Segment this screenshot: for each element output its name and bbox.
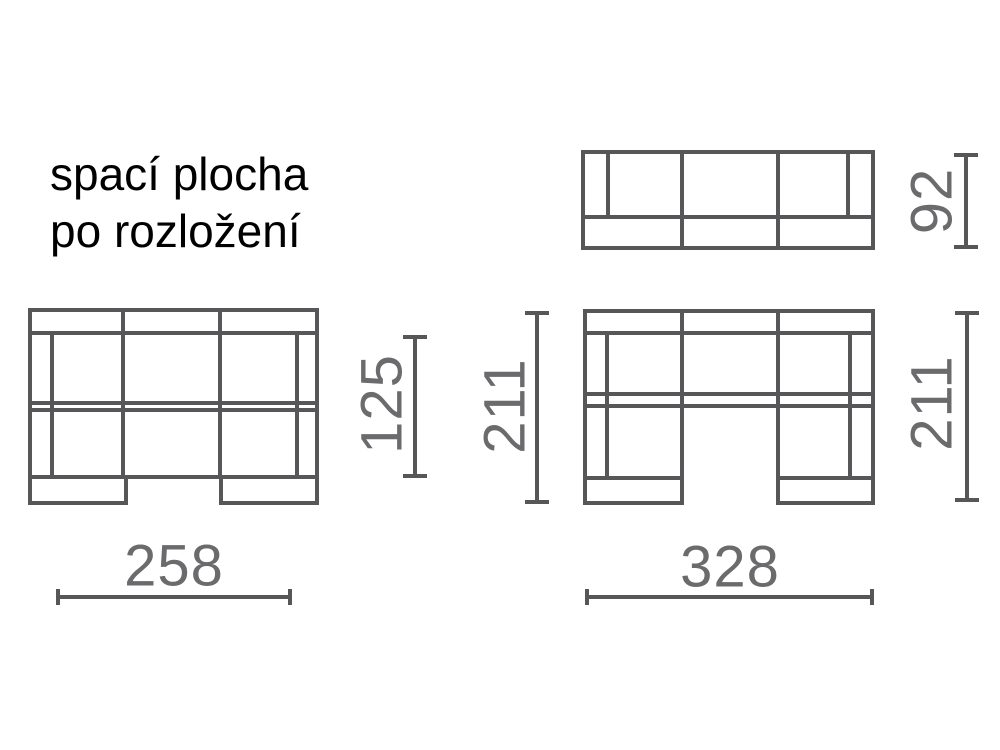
folded-outer-rect: [583, 152, 873, 248]
title-line-2: po rozložení: [50, 205, 301, 257]
bed-outer-rect: [30, 310, 317, 477]
sectional-foot-right: [778, 478, 873, 503]
dimension-211-right-label: 211: [899, 355, 964, 450]
bed-foot-left: [30, 477, 126, 503]
dimension-258: 258: [58, 533, 290, 605]
unfolded-bed-top-view: [30, 310, 317, 503]
dimension-328: 328: [587, 534, 872, 605]
dimension-211-right: 211: [899, 313, 979, 500]
sectional-foot-left: [585, 478, 682, 503]
dimension-92: 92: [899, 155, 978, 247]
folded-sofa-top-view: [583, 152, 873, 248]
sectional-sofa-top-view: [585, 311, 873, 503]
dimension-125-label: 125: [349, 354, 414, 454]
dimension-92-label: 92: [899, 168, 964, 235]
bed-foot-right: [221, 477, 317, 503]
dimension-211-left-label: 211: [472, 358, 537, 453]
dimension-258-label: 258: [124, 533, 224, 598]
furniture-dimension-diagram: spací plocha po rozložení 92: [0, 0, 1000, 750]
dimension-328-label: 328: [680, 534, 780, 599]
dimension-211-left: 211: [472, 313, 549, 502]
dimension-125: 125: [349, 337, 427, 476]
title-line-1: spací plocha: [50, 148, 309, 200]
title-block: spací plocha po rozložení: [50, 148, 309, 257]
